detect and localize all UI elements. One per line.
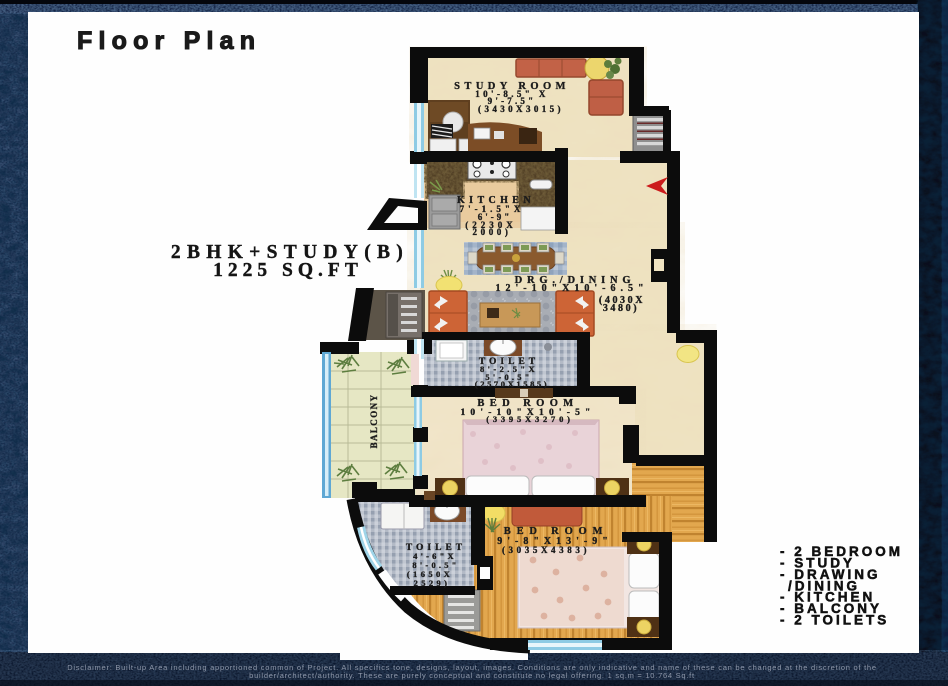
svg-text:2000): 2000) (473, 227, 512, 237)
svg-text:(2570X1585): (2570X1585) (475, 379, 549, 389)
svg-text:- 2 TOILETS: - 2 TOILETS (780, 613, 889, 628)
svg-text:(3395X3270): (3395X3270) (486, 414, 574, 424)
svg-text:(3430X3015): (3430X3015) (478, 104, 564, 114)
svg-text:BALCONY: BALCONY (369, 394, 379, 449)
svg-text:1225 SQ.FT: 1225 SQ.FT (213, 260, 363, 281)
svg-text:Floor Plan: Floor Plan (77, 27, 261, 55)
svg-text:3480): 3480) (603, 303, 639, 314)
svg-text:12'-10"X10'-6.5": 12'-10"X10'-6.5" (495, 283, 648, 294)
svg-text:(3035X4383): (3035X4383) (502, 545, 590, 555)
svg-text:2529): 2529) (414, 578, 451, 588)
svg-text:builder/architect/authority. T: builder/architect/authority. These are p… (249, 671, 695, 680)
